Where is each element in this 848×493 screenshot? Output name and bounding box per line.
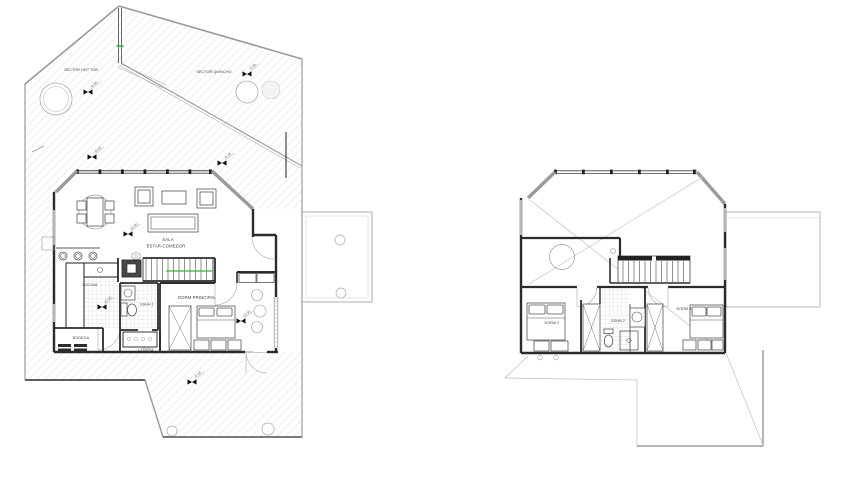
label-sector-quincho: SECTOR QUINCHO [196, 70, 231, 74]
bedroom-door-swing [215, 283, 237, 305]
stairs-upper [610, 256, 690, 283]
label-dorm-principal: DORM PRINCIPAL [178, 295, 216, 300]
decor-circle [132, 253, 141, 260]
label-lenera: LEÑERA [138, 347, 154, 352]
label-sala: SALA [162, 237, 173, 242]
loft [521, 238, 620, 270]
hot-tub [40, 83, 72, 115]
coffee-table [162, 191, 186, 204]
bed-2 [527, 303, 568, 351]
floor-plan-sheet: SECTOR HOT TUB SECTOR QUINCHO SALA ESTAR… [0, 0, 848, 493]
corner-wall-nw-upper [528, 172, 555, 198]
label-sector-hot-tub: SECTOR HOT TUB [64, 68, 98, 72]
bed-principal [194, 306, 241, 350]
sofa [148, 214, 198, 232]
terrace-post [336, 288, 346, 298]
closet-shelf [239, 274, 256, 283]
level-marker-dorm: ±0.00 [237, 308, 254, 324]
label-sshh-2: SSHH 2 [611, 319, 625, 323]
east-terrace [302, 212, 372, 302]
toilet-tank-2 [604, 329, 613, 334]
label-dorm-2: DORM 2 [545, 321, 560, 325]
quincho-table [262, 81, 280, 99]
bedroom-3 [647, 304, 723, 351]
quincho-firepit [236, 81, 258, 103]
corner-wall-ne-upper [697, 172, 725, 204]
deck-post [262, 423, 274, 435]
loft-small-circle [611, 249, 616, 254]
side-roof [726, 212, 820, 307]
armchairs [135, 187, 216, 208]
ground-floor-plan: SECTOR HOT TUB SECTOR QUINCHO SALA ESTAR… [25, 6, 372, 437]
bedroom-2 [527, 300, 600, 353]
toilet-1 [128, 304, 137, 316]
label-bodega: BODEGA [73, 336, 90, 340]
downspout [554, 355, 559, 360]
bathroom-1 [120, 283, 158, 330]
north-window-wall-upper [554, 170, 697, 175]
kitchen-door-swing [98, 328, 120, 350]
kitchen-counter-top [84, 263, 118, 277]
bed-3 [683, 305, 723, 350]
wardrobe-2 [583, 304, 600, 351]
kitchen-counter-left [66, 263, 84, 328]
label-sshh-1: SSHH 1 [140, 303, 154, 307]
label-estar-comedor: ESTAR-COMEDOR [147, 244, 186, 249]
toilet-tank-1 [121, 303, 127, 316]
level-marker-sala: ±0.00 [124, 221, 141, 237]
downspout [538, 355, 543, 360]
loft-table [550, 245, 575, 270]
terrace-post [335, 235, 345, 245]
closet-shelf [257, 274, 274, 283]
plans-drawing: SECTOR HOT TUB SECTOR QUINCHO SALA ESTAR… [0, 0, 848, 493]
sink-1 [121, 286, 135, 300]
toilet-2 [604, 335, 612, 347]
storage-bodega [54, 328, 103, 352]
label-cocina: COCINA [83, 283, 98, 287]
upper-floor-plan: DORM 2 SSHH 2 DORM 3 [505, 170, 820, 446]
wardrobe-principal [169, 306, 191, 350]
stairs-ground [122, 258, 215, 283]
wardrobe-3 [647, 304, 663, 351]
dining-table [77, 195, 114, 229]
bar-counter [56, 248, 100, 260]
deck-post [167, 426, 177, 436]
label-dorm-3: DORM 3 [677, 307, 692, 311]
